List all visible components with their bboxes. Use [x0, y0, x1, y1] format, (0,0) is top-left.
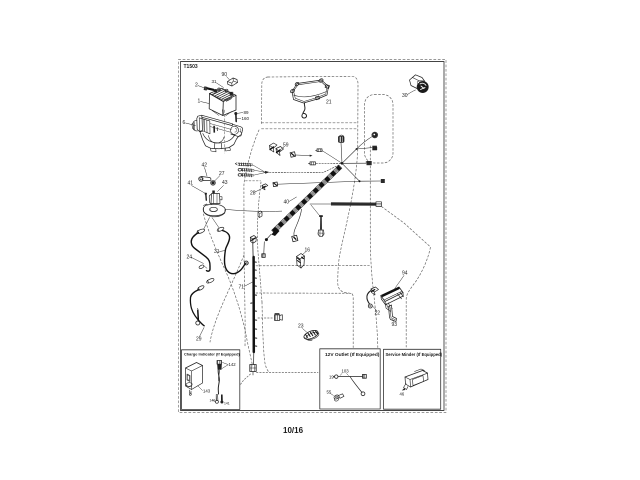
svg-text:29: 29 — [196, 337, 202, 343]
svg-text:89: 89 — [244, 110, 250, 115]
svg-text:143: 143 — [203, 389, 211, 394]
svg-text:41: 41 — [188, 181, 194, 187]
svg-text:160: 160 — [242, 116, 250, 121]
svg-text:19: 19 — [329, 375, 334, 380]
svg-text:43: 43 — [222, 180, 228, 186]
svg-text:18: 18 — [373, 146, 378, 151]
svg-text:46: 46 — [400, 392, 405, 397]
svg-text:21: 21 — [326, 100, 332, 106]
svg-text:142: 142 — [229, 362, 237, 367]
svg-text:31: 31 — [214, 249, 220, 255]
svg-text:31: 31 — [212, 79, 218, 84]
svg-text:12V Outlet (If Equipped): 12V Outlet (If Equipped) — [325, 352, 380, 358]
svg-text:90: 90 — [222, 72, 228, 78]
svg-text:27: 27 — [219, 171, 225, 177]
svg-text:22: 22 — [375, 311, 381, 317]
svg-text:16: 16 — [305, 248, 311, 254]
svg-text:Charge Indicator (If Equipped): Charge Indicator (If Equipped) — [184, 351, 240, 356]
svg-text:71: 71 — [239, 285, 245, 291]
svg-text:10/16: 10/16 — [283, 426, 304, 435]
svg-text:Service Minder (If Equipped): Service Minder (If Equipped) — [386, 352, 443, 357]
svg-text:1: 1 — [198, 99, 201, 105]
svg-text:103: 103 — [342, 369, 350, 374]
svg-text:141: 141 — [224, 402, 230, 406]
svg-text:140: 140 — [210, 399, 216, 403]
svg-text:94: 94 — [402, 271, 408, 277]
svg-text:6: 6 — [183, 120, 186, 126]
svg-text:59: 59 — [283, 143, 289, 149]
svg-text:T1503: T1503 — [184, 64, 198, 70]
svg-text:28: 28 — [250, 191, 256, 197]
svg-text:40: 40 — [284, 200, 290, 206]
svg-text:30: 30 — [402, 93, 408, 99]
svg-text:93: 93 — [392, 322, 398, 328]
